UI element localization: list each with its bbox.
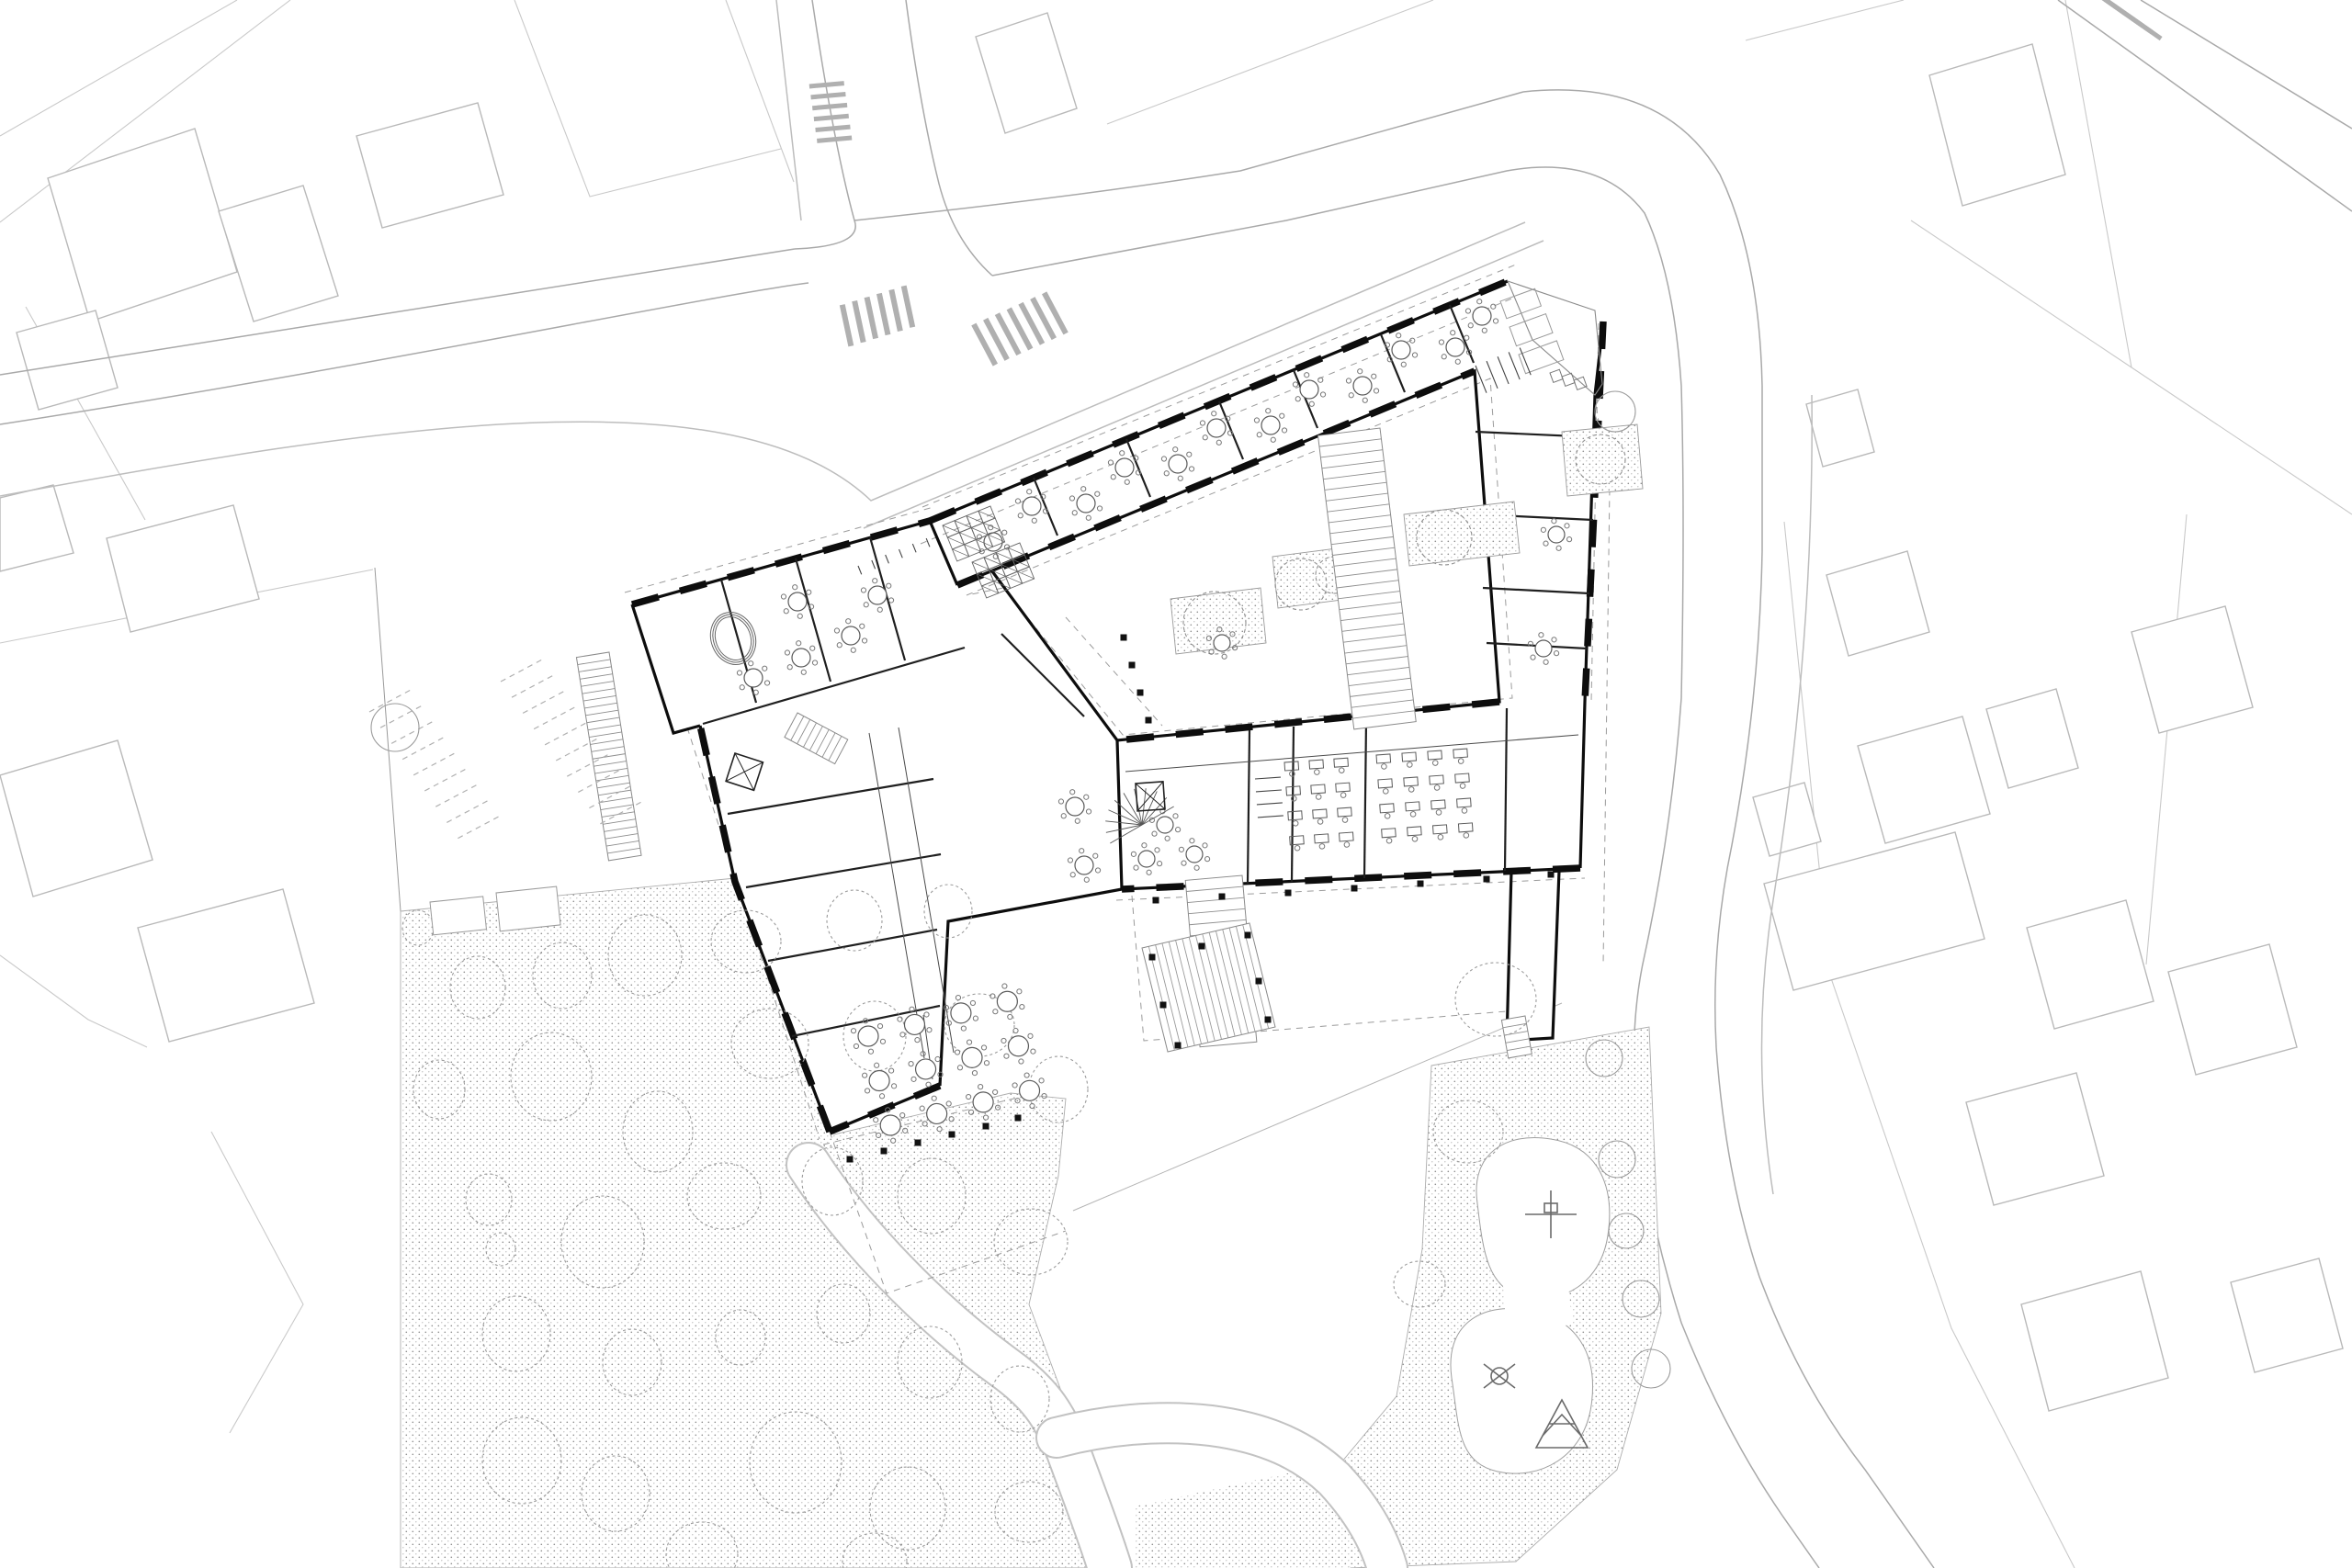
context-building: [2231, 1258, 2343, 1372]
round-table-group: [1001, 1028, 1035, 1064]
kerb-top-right: [2058, 0, 2352, 211]
table: [1075, 856, 1093, 874]
deck-post: [1149, 954, 1156, 961]
parcel-line: [1107, 0, 1433, 124]
chair: [957, 1066, 962, 1070]
table: [858, 1026, 878, 1046]
table: [973, 1092, 993, 1112]
table: [880, 1115, 900, 1135]
table: [1535, 640, 1552, 657]
table: [1446, 338, 1464, 356]
chair: [993, 1010, 998, 1014]
chair: [970, 1000, 975, 1005]
chair: [981, 1045, 986, 1050]
chair: [1004, 1054, 1009, 1058]
table: [904, 1014, 924, 1034]
chair: [932, 1096, 936, 1100]
chair: [874, 1118, 878, 1122]
table: [1157, 817, 1173, 833]
chair: [1008, 1014, 1012, 1019]
chair: [1001, 1038, 1006, 1043]
table: [916, 1059, 936, 1079]
colonnade-post: [1418, 881, 1424, 887]
colonnade-post: [1484, 876, 1490, 883]
street-tree: [371, 704, 419, 751]
round-table-group: [955, 1040, 989, 1076]
deck-post: [1245, 932, 1251, 939]
chair: [978, 1085, 983, 1089]
context-building: [1986, 689, 2078, 788]
context-building: [976, 13, 1077, 133]
parcel-line: [1784, 522, 2075, 1568]
kerb-top-right: [2141, 0, 2352, 129]
chair: [946, 1101, 951, 1106]
parking-stall-line: [369, 691, 410, 712]
colonnade-post: [1351, 886, 1358, 892]
parking-stall-line: [391, 722, 432, 743]
context-building: [2168, 944, 2297, 1075]
parking-stall-line: [458, 817, 498, 838]
table: [868, 586, 887, 604]
table: [1214, 635, 1230, 651]
parking-row: [369, 691, 499, 839]
context-building: [1966, 1073, 2104, 1205]
parking-stall-line: [447, 801, 487, 822]
zebra-crossing: [974, 293, 1066, 365]
context-building: [48, 129, 237, 321]
parking-stall-line: [424, 770, 465, 791]
site-plan-drawing: [0, 0, 2352, 1568]
chair: [900, 1113, 905, 1118]
site-boundary: [375, 568, 401, 911]
zebra-stripe: [814, 116, 849, 118]
chair: [1039, 1078, 1044, 1083]
terrace-post: [847, 1156, 854, 1163]
chair: [920, 1106, 924, 1111]
table: [1077, 494, 1095, 513]
parcel-line: [2146, 514, 2187, 964]
table: [951, 1003, 971, 1023]
sidewalk-line: [776, 0, 801, 220]
parcel-line: [1746, 0, 1904, 40]
zebra-stripe: [809, 84, 844, 86]
table: [1207, 419, 1226, 437]
zebra-stripe: [879, 293, 888, 334]
courtyard-planter: [1562, 424, 1643, 496]
table: [1169, 455, 1187, 473]
chair: [972, 1070, 977, 1075]
chair: [961, 1026, 966, 1031]
table: [1023, 497, 1041, 515]
context-building: [219, 186, 338, 321]
deck-post: [1175, 1043, 1182, 1049]
chair: [973, 1016, 978, 1021]
context-building: [107, 505, 259, 632]
colonnade-post: [1219, 894, 1226, 900]
table: [927, 1103, 947, 1123]
context-building: [17, 310, 118, 410]
colonnade-post: [1285, 890, 1292, 897]
context-building: [1753, 783, 1821, 856]
table: [997, 991, 1017, 1011]
table: [1473, 307, 1491, 325]
terrace-post: [915, 1140, 922, 1146]
chair: [993, 1089, 998, 1094]
site-plan-canvas: [0, 0, 2352, 1568]
canopy-post: [1137, 690, 1144, 696]
table: [1066, 797, 1084, 816]
table: [1186, 846, 1203, 863]
table: [792, 649, 810, 667]
parking-stall-line: [523, 692, 563, 713]
terrace-post: [1015, 1115, 1022, 1122]
deck-post: [1160, 1002, 1167, 1009]
context-building: [138, 889, 314, 1042]
parcel-line: [211, 1132, 303, 1433]
sand-blob: [1476, 1137, 1610, 1298]
parcel-line: [0, 955, 147, 1047]
chair: [1017, 989, 1022, 994]
zebra-stripe: [904, 286, 913, 327]
chair: [1031, 1049, 1035, 1054]
parking-stall-line: [512, 676, 552, 697]
chair: [984, 1061, 989, 1066]
context-building: [1806, 389, 1874, 467]
table: [1008, 1036, 1028, 1056]
chair: [955, 1050, 959, 1055]
chair: [955, 995, 960, 999]
context-building: [0, 485, 73, 571]
colonnade-post: [1153, 897, 1159, 904]
table: [869, 1071, 889, 1091]
meadow-bench: [430, 897, 486, 935]
meadow-bench: [496, 886, 560, 931]
table: [788, 592, 807, 611]
parcel-line: [1911, 220, 2131, 367]
deck-post: [1256, 978, 1262, 985]
zebra-stripe: [811, 95, 846, 97]
zebra-stripe: [842, 305, 852, 346]
chair: [1024, 1073, 1029, 1077]
planter-stipple: [1562, 424, 1643, 496]
context-building: [0, 740, 153, 897]
meadow-stipple: [401, 878, 1130, 1568]
parking-stall-line: [402, 738, 443, 759]
canopy-post: [1146, 717, 1152, 724]
parcel-line: [2065, 0, 2352, 514]
sand-link: [1503, 1279, 1573, 1332]
context-building: [2131, 606, 2253, 733]
parking-stall-line: [545, 723, 585, 744]
table: [744, 669, 763, 687]
zebra-stripe: [812, 105, 847, 107]
sand-blob: [1451, 1309, 1593, 1474]
round-table-group: [944, 995, 978, 1031]
table: [1300, 380, 1318, 399]
parking-stall-line: [534, 707, 574, 728]
table: [1353, 377, 1372, 395]
canopy-post: [1121, 635, 1127, 641]
context-building: [1929, 44, 2065, 206]
stair-band: [576, 652, 641, 861]
zebra-stripe: [816, 127, 851, 130]
zebra-stripe: [891, 289, 900, 331]
table: [1392, 341, 1410, 359]
context-building: [1858, 716, 1990, 843]
context-building: [2021, 1271, 2168, 1411]
chair: [1020, 1004, 1024, 1009]
table: [1548, 526, 1565, 543]
zebra-stripe: [867, 298, 876, 339]
chair: [967, 1094, 971, 1099]
chair: [1028, 1033, 1033, 1038]
parcel-line: [514, 0, 781, 197]
context-building: [1764, 832, 1984, 990]
context-building: [356, 103, 503, 228]
canopy-post: [1129, 662, 1136, 669]
table: [842, 626, 860, 645]
terrace-post: [949, 1132, 955, 1138]
parking-stall-line: [413, 753, 454, 774]
zebra-stripe: [2132, 18, 2161, 39]
table: [1261, 416, 1280, 434]
round-table-group: [990, 984, 1024, 1020]
road-kerb-ne-top: [854, 92, 1523, 220]
deck-post: [1265, 1017, 1272, 1023]
terrace-post: [881, 1148, 888, 1155]
road-kerb-north-arm-west: [795, 0, 855, 249]
zebra-stripe: [817, 138, 852, 141]
colonnade-post: [1548, 872, 1555, 878]
context-building: [2027, 900, 2154, 1029]
context-building: [1826, 551, 1929, 656]
table: [1138, 851, 1155, 867]
table: [962, 1047, 982, 1067]
terrace-post: [983, 1123, 989, 1130]
parking-stall-line: [435, 785, 476, 807]
chair: [1012, 1083, 1017, 1088]
chair: [967, 1040, 971, 1044]
table: [1020, 1080, 1040, 1100]
parking-stall-line: [501, 660, 541, 682]
zebra-stripe: [854, 301, 864, 343]
chair: [1002, 984, 1007, 988]
deck-post: [1199, 943, 1205, 950]
zebra-crossing: [842, 286, 913, 345]
chair: [1019, 1059, 1023, 1064]
table: [1115, 458, 1134, 477]
street-tree: [1595, 391, 1635, 432]
